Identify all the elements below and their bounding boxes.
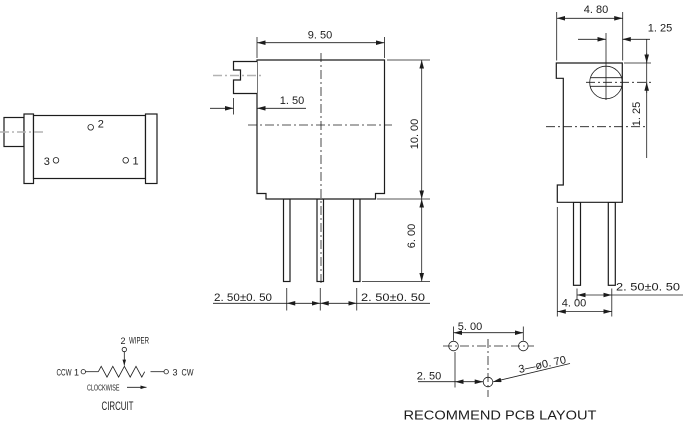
front-dim-pin-length-label: 6. 00 — [406, 224, 418, 248]
left-view-right-cap — [146, 114, 158, 184]
left-view-left-cap — [24, 114, 34, 184]
front-pin-right — [354, 199, 361, 282]
right-dim-pitch-label: 2. 50±0. 50 — [616, 282, 680, 294]
circuit-cw-label: CW — [182, 367, 194, 377]
right-dim-base-label: 4. 00 — [562, 298, 586, 310]
right-pin-right — [608, 202, 615, 285]
circuit-caption: CIRCUIT — [102, 401, 134, 413]
pcb-dim-offset-label: 2. 50 — [417, 371, 441, 383]
pcb-caption: RECOMMEND PCB LAYOUT — [404, 409, 597, 423]
front-dim-pitch-left-label: 2. 50±0. 50 — [214, 292, 272, 304]
circuit-pin1-label: 1 — [74, 367, 79, 377]
left-side-view: 2 3 1 — [0, 114, 157, 184]
circuit-wiper-label: WIPER — [129, 336, 149, 346]
circuit-ccw-label: CCW — [57, 367, 72, 377]
left-view-pin1-label: 1 — [132, 156, 138, 168]
front-pin-left — [284, 199, 291, 282]
left-view-pin3-label: 3 — [44, 156, 50, 168]
circuit-pin2-label: 2 — [120, 336, 125, 346]
right-dim-depth-label: 4. 80 — [584, 4, 608, 16]
front-dim-height-label: 10. 00 — [409, 119, 421, 150]
drawing-canvas: 2 3 1 9. 50 1. 50 — [0, 0, 694, 429]
technical-drawing-page: 2 3 1 9. 50 1. 50 — [0, 0, 694, 429]
front-dim-width-label: 9. 50 — [308, 30, 332, 42]
right-pin-left — [574, 202, 581, 285]
front-pin-center — [317, 199, 324, 282]
right-dim-screw-offset-v-label: 1. 25 — [631, 102, 643, 126]
right-dim-screw-offset-h-label: 1. 25 — [648, 23, 672, 35]
left-view-pin2-label: 2 — [98, 119, 104, 131]
circuit-clockwise-label: CLOCKWISE — [87, 383, 120, 393]
front-dim-shaft-label: 1. 50 — [280, 95, 304, 107]
right-body-outline — [556, 63, 622, 202]
pcb-dim-pitch-label: 5. 00 — [458, 321, 482, 333]
circuit-pin3-label: 3 — [172, 367, 177, 377]
front-dim-pitch-right-label: 2. 50±0. 50 — [361, 292, 425, 304]
